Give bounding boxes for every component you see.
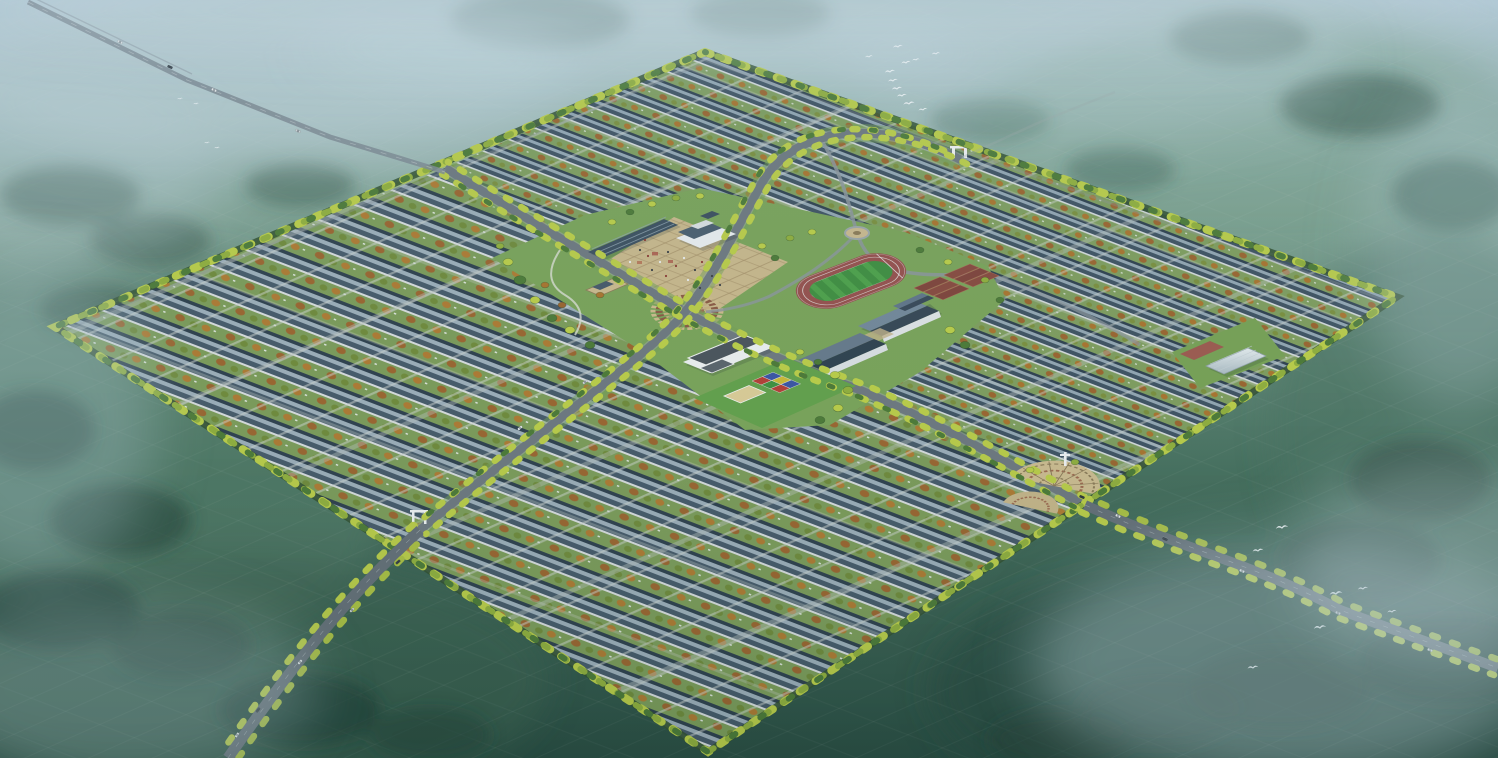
- aerial-rendering-canvas: [0, 0, 1498, 758]
- rendered-image: [0, 0, 1498, 758]
